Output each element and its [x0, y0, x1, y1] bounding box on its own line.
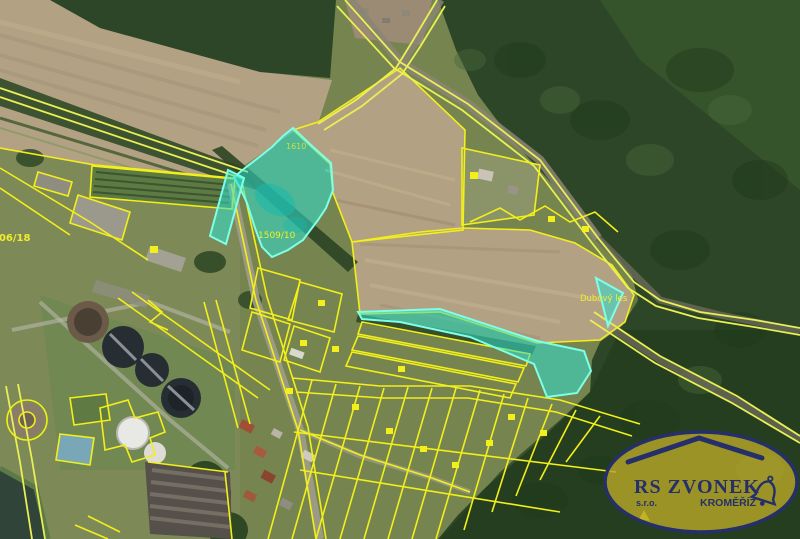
parcel-label-highlight: 1509/10: [258, 231, 296, 241]
parcel-label-upper: 1610: [286, 142, 306, 151]
logo-rs-zvonek: RS ZVONEK s.r.o. KROMĚŘÍŽ: [605, 432, 797, 532]
logo-city: KROMĚŘÍŽ: [700, 496, 757, 509]
logo-legal-form: s.r.o.: [636, 498, 657, 508]
map-image: 1509/10 506/18 1610 Dubový les RS ZVONEK…: [0, 0, 800, 539]
forest-name-label: Dubový les: [580, 294, 628, 304]
logo-company-name: RS ZVONEK: [634, 476, 760, 498]
parcel-label-left-edge: 506/18: [0, 233, 30, 244]
